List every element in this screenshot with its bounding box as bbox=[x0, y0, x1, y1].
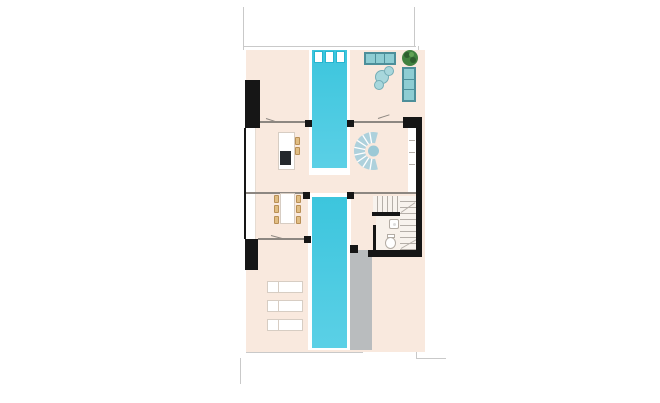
washbasin bbox=[389, 219, 399, 229]
concrete-pool-deck bbox=[350, 250, 372, 350]
two-seat-side-sofa bbox=[402, 67, 416, 102]
exterior-wall bbox=[350, 245, 358, 253]
plant-leaf bbox=[409, 52, 414, 57]
shelf-tick bbox=[409, 140, 415, 141]
sun-lounger bbox=[267, 300, 303, 312]
exterior-wall bbox=[245, 80, 260, 128]
dining-chair bbox=[274, 205, 279, 213]
sofa-cushion bbox=[366, 54, 375, 63]
sofa-cushion bbox=[404, 69, 414, 79]
exterior-wall bbox=[245, 239, 258, 270]
pool-glass-panel bbox=[325, 51, 334, 63]
structural-column bbox=[347, 120, 354, 127]
floor-plan-canvas bbox=[0, 0, 660, 403]
plot-boundary-line bbox=[240, 358, 241, 384]
sofa-cushion bbox=[404, 80, 414, 90]
dining-chair bbox=[274, 195, 279, 203]
toilet bbox=[385, 237, 396, 249]
washbasin-drain bbox=[393, 223, 396, 226]
dining-chair bbox=[274, 216, 279, 224]
shelf-tick bbox=[409, 164, 415, 165]
shelf-tick bbox=[409, 152, 415, 153]
exterior-wall bbox=[416, 117, 422, 257]
u-shaped-staircase bbox=[373, 196, 400, 213]
plant-leaf bbox=[410, 57, 416, 63]
swimming-pool bbox=[312, 197, 347, 348]
dining-chair bbox=[296, 216, 301, 224]
plot-boundary-line bbox=[416, 358, 446, 359]
plot-boundary-line bbox=[246, 352, 363, 353]
bar-stool bbox=[295, 147, 300, 155]
three-seat-sofa bbox=[364, 52, 396, 65]
wall-shelf bbox=[408, 128, 416, 192]
structural-column bbox=[304, 236, 311, 243]
dining-table bbox=[280, 193, 295, 224]
round-pouf bbox=[384, 66, 394, 76]
bar-stool bbox=[295, 137, 300, 145]
swimming-pool bbox=[312, 50, 347, 168]
exterior-wall bbox=[244, 128, 246, 239]
interior-wall-line bbox=[260, 121, 305, 123]
plot-boundary-line bbox=[243, 7, 244, 50]
stair-landing-wall bbox=[372, 212, 400, 216]
sofa-cushion bbox=[385, 54, 394, 63]
u-shaped-staircase bbox=[400, 196, 417, 250]
plot-boundary-line bbox=[244, 46, 416, 47]
glass-facade bbox=[246, 128, 256, 239]
potted-plant bbox=[402, 50, 418, 66]
sofa-cushion bbox=[404, 90, 414, 100]
lounger-pillow-line bbox=[278, 320, 279, 330]
bathroom-wall bbox=[373, 225, 376, 250]
plot-boundary-line bbox=[414, 7, 415, 46]
structural-column bbox=[305, 120, 312, 127]
sofa-cushion bbox=[376, 54, 385, 63]
round-pouf bbox=[374, 80, 384, 90]
pool-glass-panel bbox=[314, 51, 323, 63]
pool-glass-panel bbox=[336, 51, 345, 63]
sun-lounger bbox=[267, 281, 303, 293]
dining-chair bbox=[296, 205, 301, 213]
interior-wall-line bbox=[354, 192, 416, 194]
exterior-wall bbox=[368, 250, 422, 257]
structural-column bbox=[303, 192, 310, 199]
dining-chair bbox=[296, 195, 301, 203]
sun-lounger bbox=[267, 319, 303, 331]
spiral-staircase bbox=[352, 131, 394, 173]
structural-column bbox=[347, 192, 354, 199]
cooktop bbox=[280, 151, 291, 165]
lounger-pillow-line bbox=[278, 282, 279, 292]
interior-wall-line bbox=[353, 121, 403, 123]
lounger-pillow-line bbox=[278, 301, 279, 311]
